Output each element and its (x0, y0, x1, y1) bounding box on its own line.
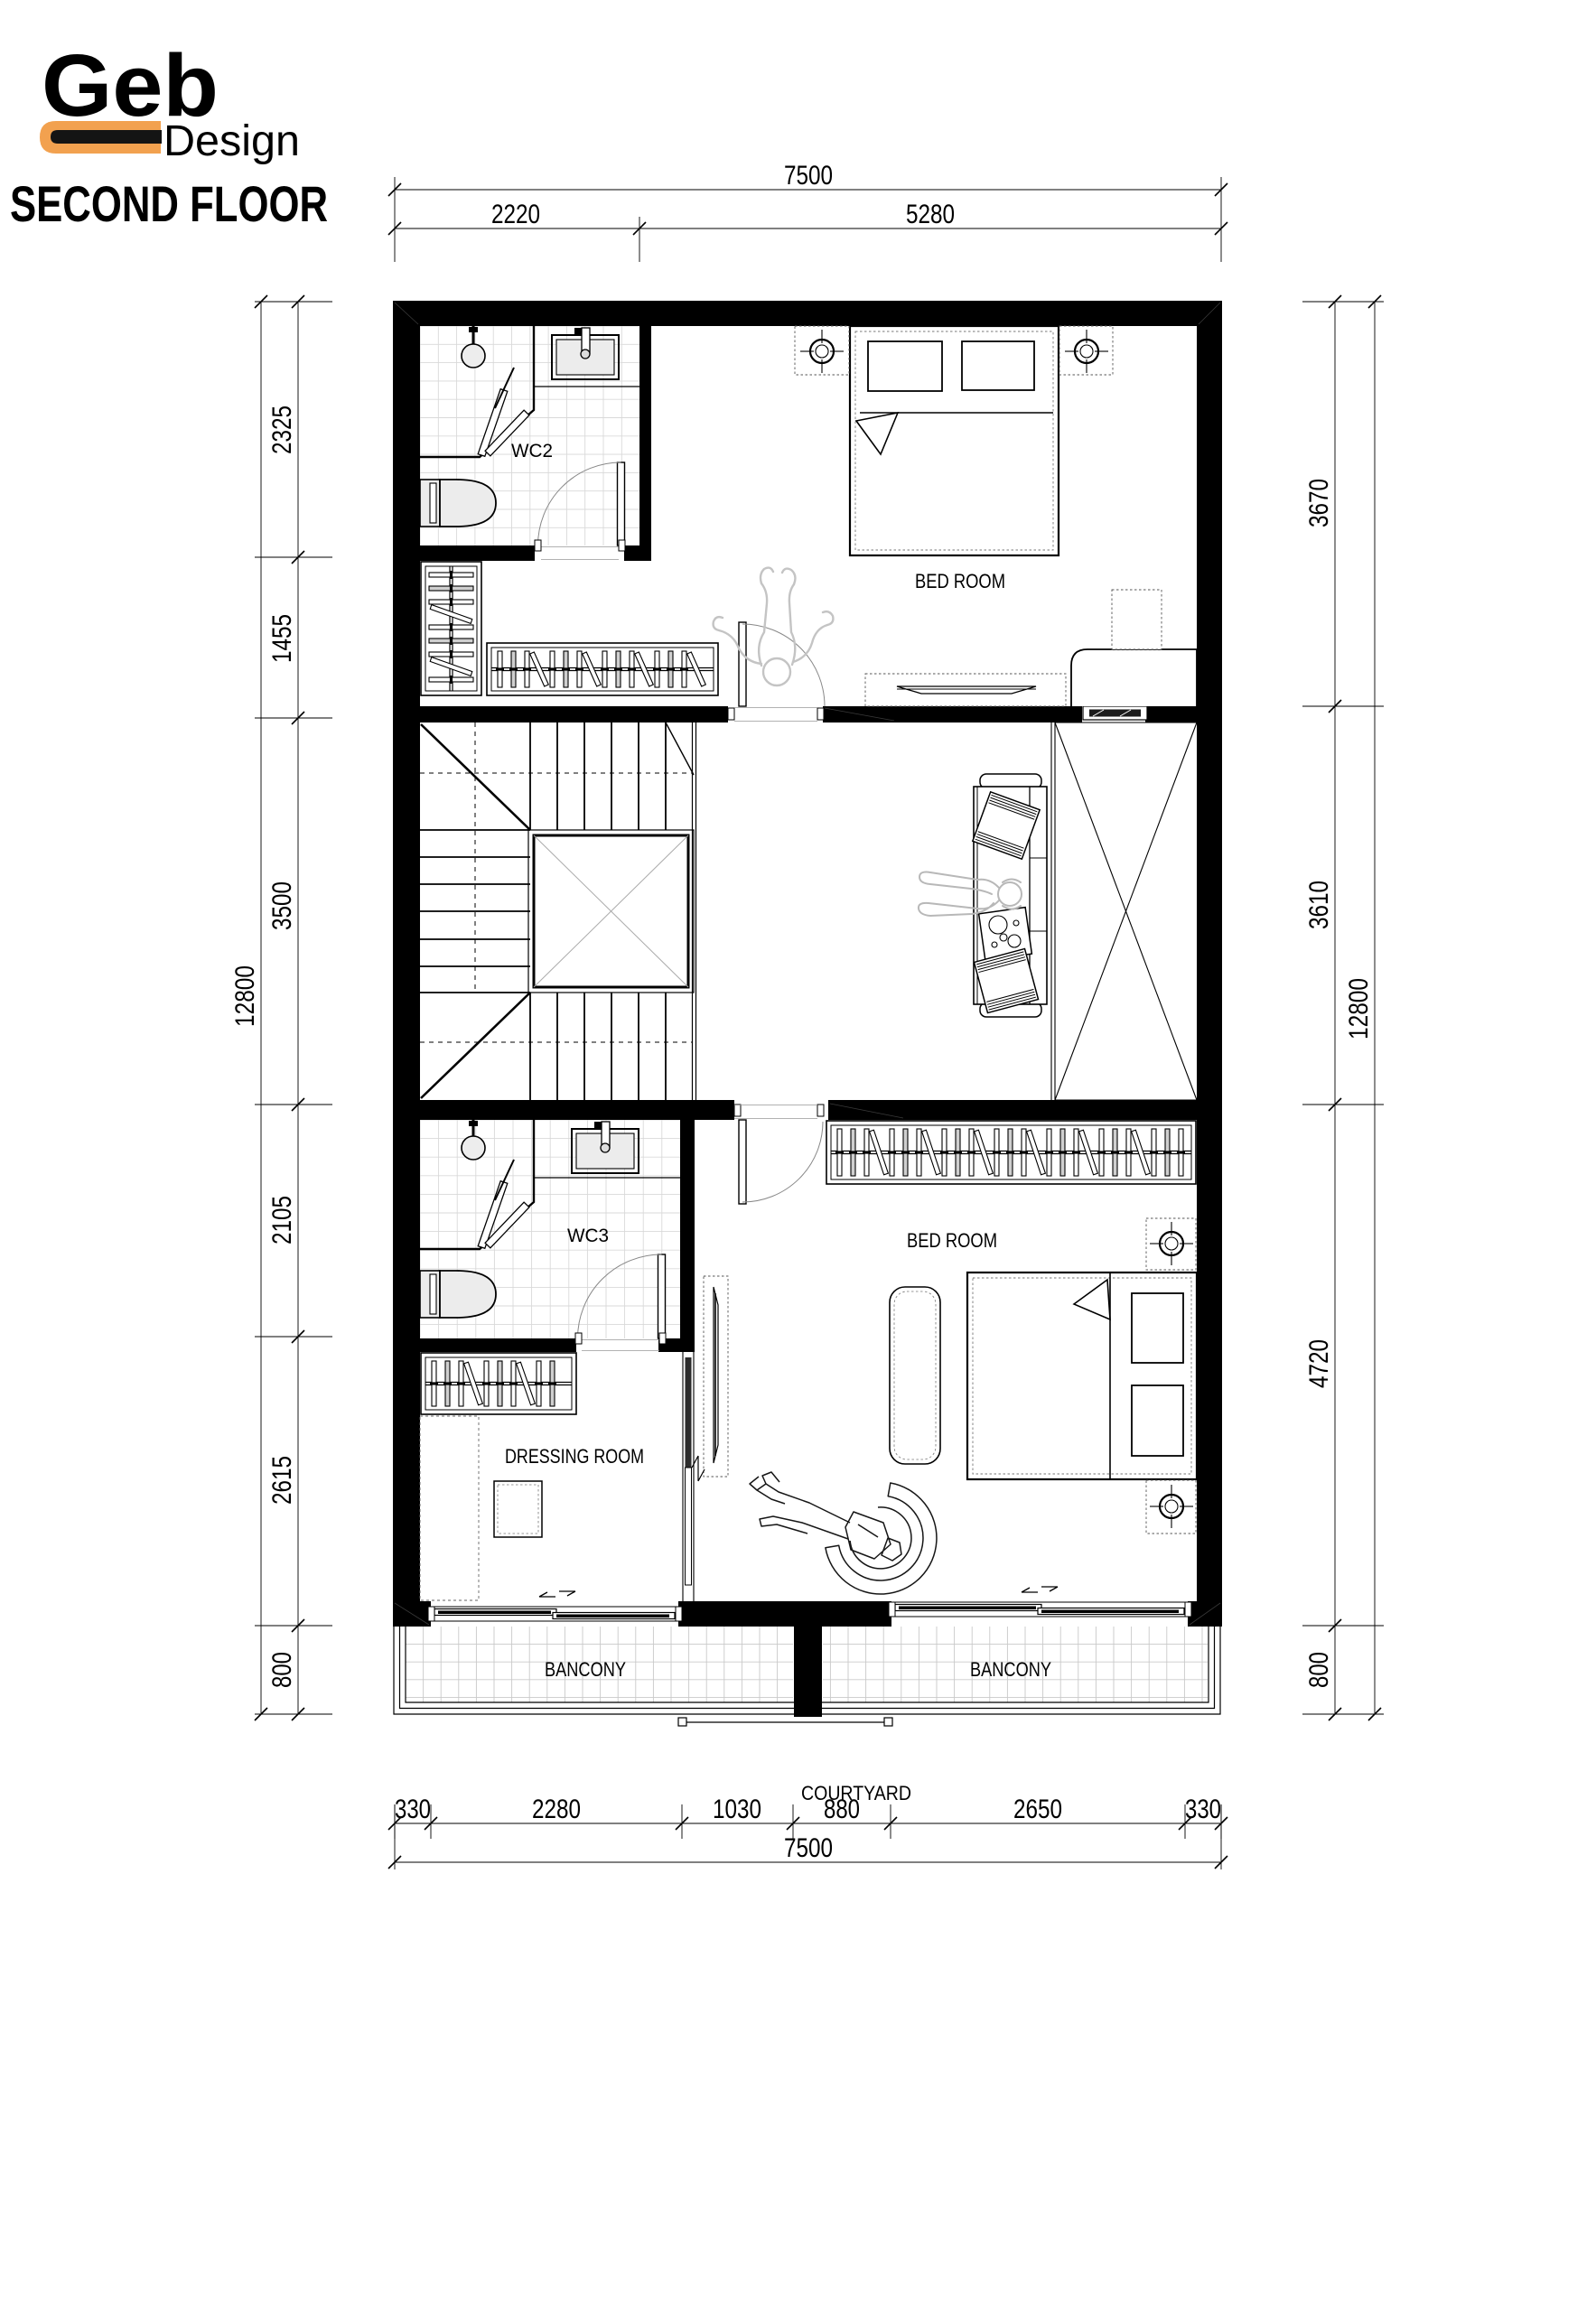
svg-text:BANCONY: BANCONY (970, 1658, 1051, 1681)
svg-text:330: 330 (1185, 1795, 1221, 1824)
svg-text:2220: 2220 (491, 200, 540, 229)
svg-text:330: 330 (395, 1795, 431, 1824)
svg-text:WC3: WC3 (567, 1226, 609, 1246)
svg-text:COURTYARD: COURTYARD (801, 1782, 911, 1804)
svg-text:BANCONY: BANCONY (545, 1658, 626, 1681)
svg-text:2105: 2105 (267, 1196, 297, 1245)
svg-text:Design: Design (163, 117, 300, 165)
svg-text:12800: 12800 (230, 965, 260, 1027)
svg-text:WC2: WC2 (511, 441, 553, 461)
svg-text:1455: 1455 (267, 614, 297, 663)
svg-text:3670: 3670 (1304, 479, 1334, 527)
svg-text:2325: 2325 (267, 406, 297, 454)
svg-text:BED ROOM: BED ROOM (915, 570, 1005, 592)
svg-text:BED ROOM: BED ROOM (907, 1229, 997, 1252)
svg-text:4720: 4720 (1304, 1339, 1334, 1388)
svg-text:2650: 2650 (1013, 1795, 1062, 1824)
svg-text:12800: 12800 (1344, 978, 1374, 1039)
svg-text:3500: 3500 (267, 881, 297, 930)
svg-text:7500: 7500 (784, 1833, 833, 1863)
svg-text:1030: 1030 (713, 1795, 761, 1824)
svg-text:SECOND FLOOR: SECOND FLOOR (10, 175, 328, 232)
svg-text:800: 800 (1304, 1652, 1334, 1688)
svg-text:DRESSING ROOM: DRESSING ROOM (505, 1445, 644, 1468)
svg-text:2615: 2615 (267, 1456, 297, 1505)
svg-text:2280: 2280 (532, 1795, 581, 1824)
svg-text:800: 800 (267, 1652, 297, 1688)
svg-text:3610: 3610 (1304, 881, 1334, 929)
svg-text:5280: 5280 (906, 200, 955, 229)
svg-text:7500: 7500 (784, 161, 833, 191)
